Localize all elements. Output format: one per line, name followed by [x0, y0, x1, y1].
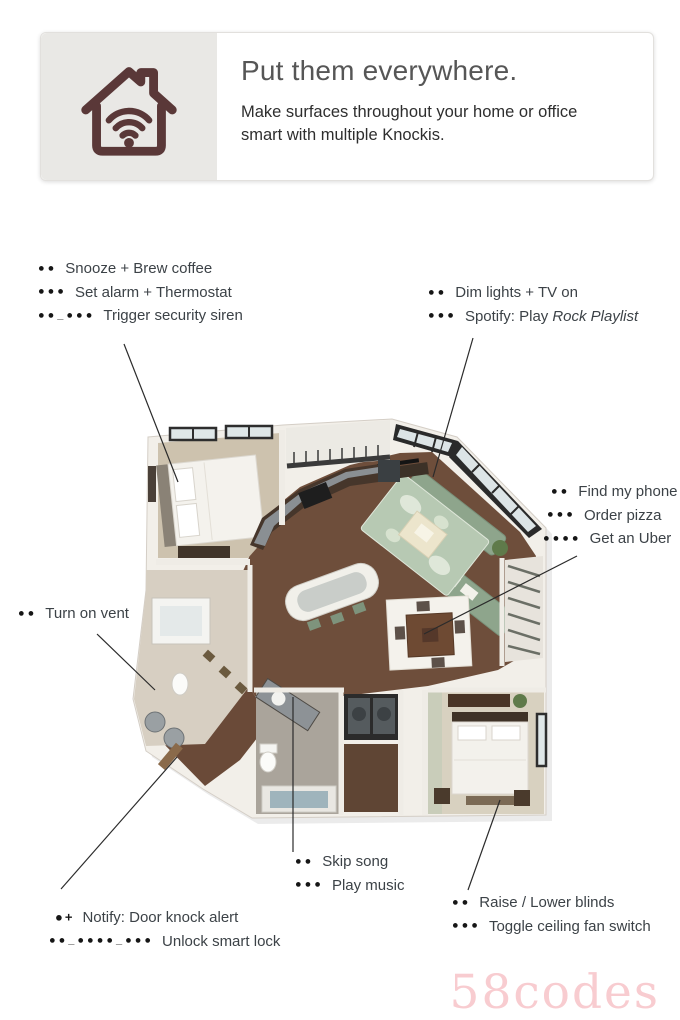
knock-action-label-italic: Rock Playlist [552, 308, 638, 325]
knock-pattern: ●●● [428, 310, 457, 322]
knock-action-row: ●● Snooze + Brew coffee [38, 257, 243, 281]
knock-pattern: ●● [18, 607, 37, 619]
knock-action-label: Toggle ceiling fan switch [489, 918, 651, 935]
fridge [378, 460, 400, 482]
page-subtitle: Make surfaces throughout your home or of… [241, 101, 609, 148]
dining-set [386, 596, 472, 670]
knock-action-row: ●● Raise / Lower blinds [452, 891, 651, 915]
infographic-canvas: Put them everywhere. Make surfaces throu… [0, 0, 680, 1020]
knock-action-label: Notify: Door knock alert [82, 909, 238, 926]
knock-action-row: ●●● Order pizza [543, 504, 678, 528]
knock-action-label: Turn on vent [45, 605, 129, 622]
hall-closet-floor [344, 744, 398, 812]
knock-pattern: ●+ [55, 910, 74, 925]
knock-action-label: Set alarm + Thermostat [75, 284, 232, 301]
annotation-living-room: ●● Dim lights + TV on ●●● Spotify: Play … [428, 281, 638, 328]
knock-pattern: ●●● [38, 286, 67, 298]
washer [145, 712, 165, 732]
knock-action-label: Skip song [322, 853, 388, 870]
dresser [178, 546, 230, 558]
knock-pattern: ●● [551, 485, 570, 497]
knock-action-row: ●● Find my phone [543, 480, 678, 504]
knock-action-row: ●●● Spotify: Play Rock Playlist [428, 305, 638, 329]
knock-action-label: Unlock smart lock [162, 933, 280, 950]
knock-pattern: ●●●● [543, 532, 582, 544]
knock-action-row: ●● Turn on vent [18, 602, 129, 626]
annotation-bedroom-kitchen: ●● Snooze + Brew coffee ●●● Set alarm + … [38, 257, 243, 328]
knock-pattern: ●● [452, 896, 471, 908]
annotation-bedroom2: ●● Raise / Lower blinds ●●● Toggle ceili… [452, 891, 651, 938]
knock-action-row: ●+ Notify: Door knock alert [49, 906, 280, 930]
master-bed [156, 455, 264, 547]
page-title: Put them everywhere. [241, 55, 609, 87]
annotation-dining: ●● Find my phone ●●● Order pizza ●●●● Ge… [543, 480, 678, 551]
toilet [260, 744, 277, 772]
header-card: Put them everywhere. Make surfaces throu… [40, 32, 654, 181]
plant [513, 694, 527, 708]
plant [492, 540, 508, 556]
dryer [164, 728, 184, 748]
floor-plan-render [90, 402, 570, 834]
knock-pattern: ●● [428, 286, 447, 298]
knock-pattern: ●● [38, 262, 57, 274]
knock-action-label: Snooze + Brew coffee [65, 260, 212, 277]
knock-action-label: Play music [332, 877, 405, 894]
knock-action-row: ●●_●●● Trigger security siren [38, 304, 243, 328]
house-wifi-icon [70, 48, 188, 166]
toilet [172, 673, 188, 695]
nightstand [514, 790, 530, 806]
annotation-front-door: ●+ Notify: Door knock alert ●●_●●●●_●●● … [49, 906, 280, 953]
annotation-music: ●● Skip song ●●● Play music [295, 850, 404, 897]
knock-action-label: Order pizza [584, 507, 662, 524]
knock-action-label: Find my phone [578, 483, 677, 500]
knock-pattern: ●●_●●●●_●●● [49, 935, 154, 947]
knock-action-row: ●● Dim lights + TV on [428, 281, 638, 305]
dresser2 [448, 694, 510, 707]
header-text-block: Put them everywhere. Make surfaces throu… [217, 33, 635, 180]
annotation-bathroom: ●● Turn on vent [18, 602, 129, 626]
knock-pattern: ●●● [295, 879, 324, 891]
knock-action-row: ●●● Toggle ceiling fan switch [452, 915, 651, 939]
knock-pattern: ●● [295, 855, 314, 867]
wall-art [148, 466, 156, 502]
knock-pattern: ●●● [452, 920, 481, 932]
knock-action-row: ●● Skip song [295, 850, 404, 874]
knock-pattern: ●●● [547, 509, 576, 521]
icon-panel [41, 33, 217, 180]
bench [466, 796, 514, 805]
knock-action-label: Dim lights + TV on [455, 284, 578, 301]
knock-action-label: Trigger security siren [103, 307, 242, 324]
knock-action-label: Raise / Lower blinds [479, 894, 614, 911]
knock-pattern: ●●_●●● [38, 309, 95, 321]
knock-action-row: ●●_●●●●_●●● Unlock smart lock [49, 930, 280, 954]
knock-action-row: ●●●● Get an Uber [543, 527, 678, 551]
watermark: 58codes [450, 965, 660, 1020]
knock-action-label: Spotify: Play [465, 308, 548, 325]
knock-action-row: ●●● Play music [295, 874, 404, 898]
nightstand [434, 788, 450, 804]
window [537, 714, 546, 766]
knock-action-row: ●●● Set alarm + Thermostat [38, 281, 243, 305]
knock-action-label: Get an Uber [590, 530, 672, 547]
